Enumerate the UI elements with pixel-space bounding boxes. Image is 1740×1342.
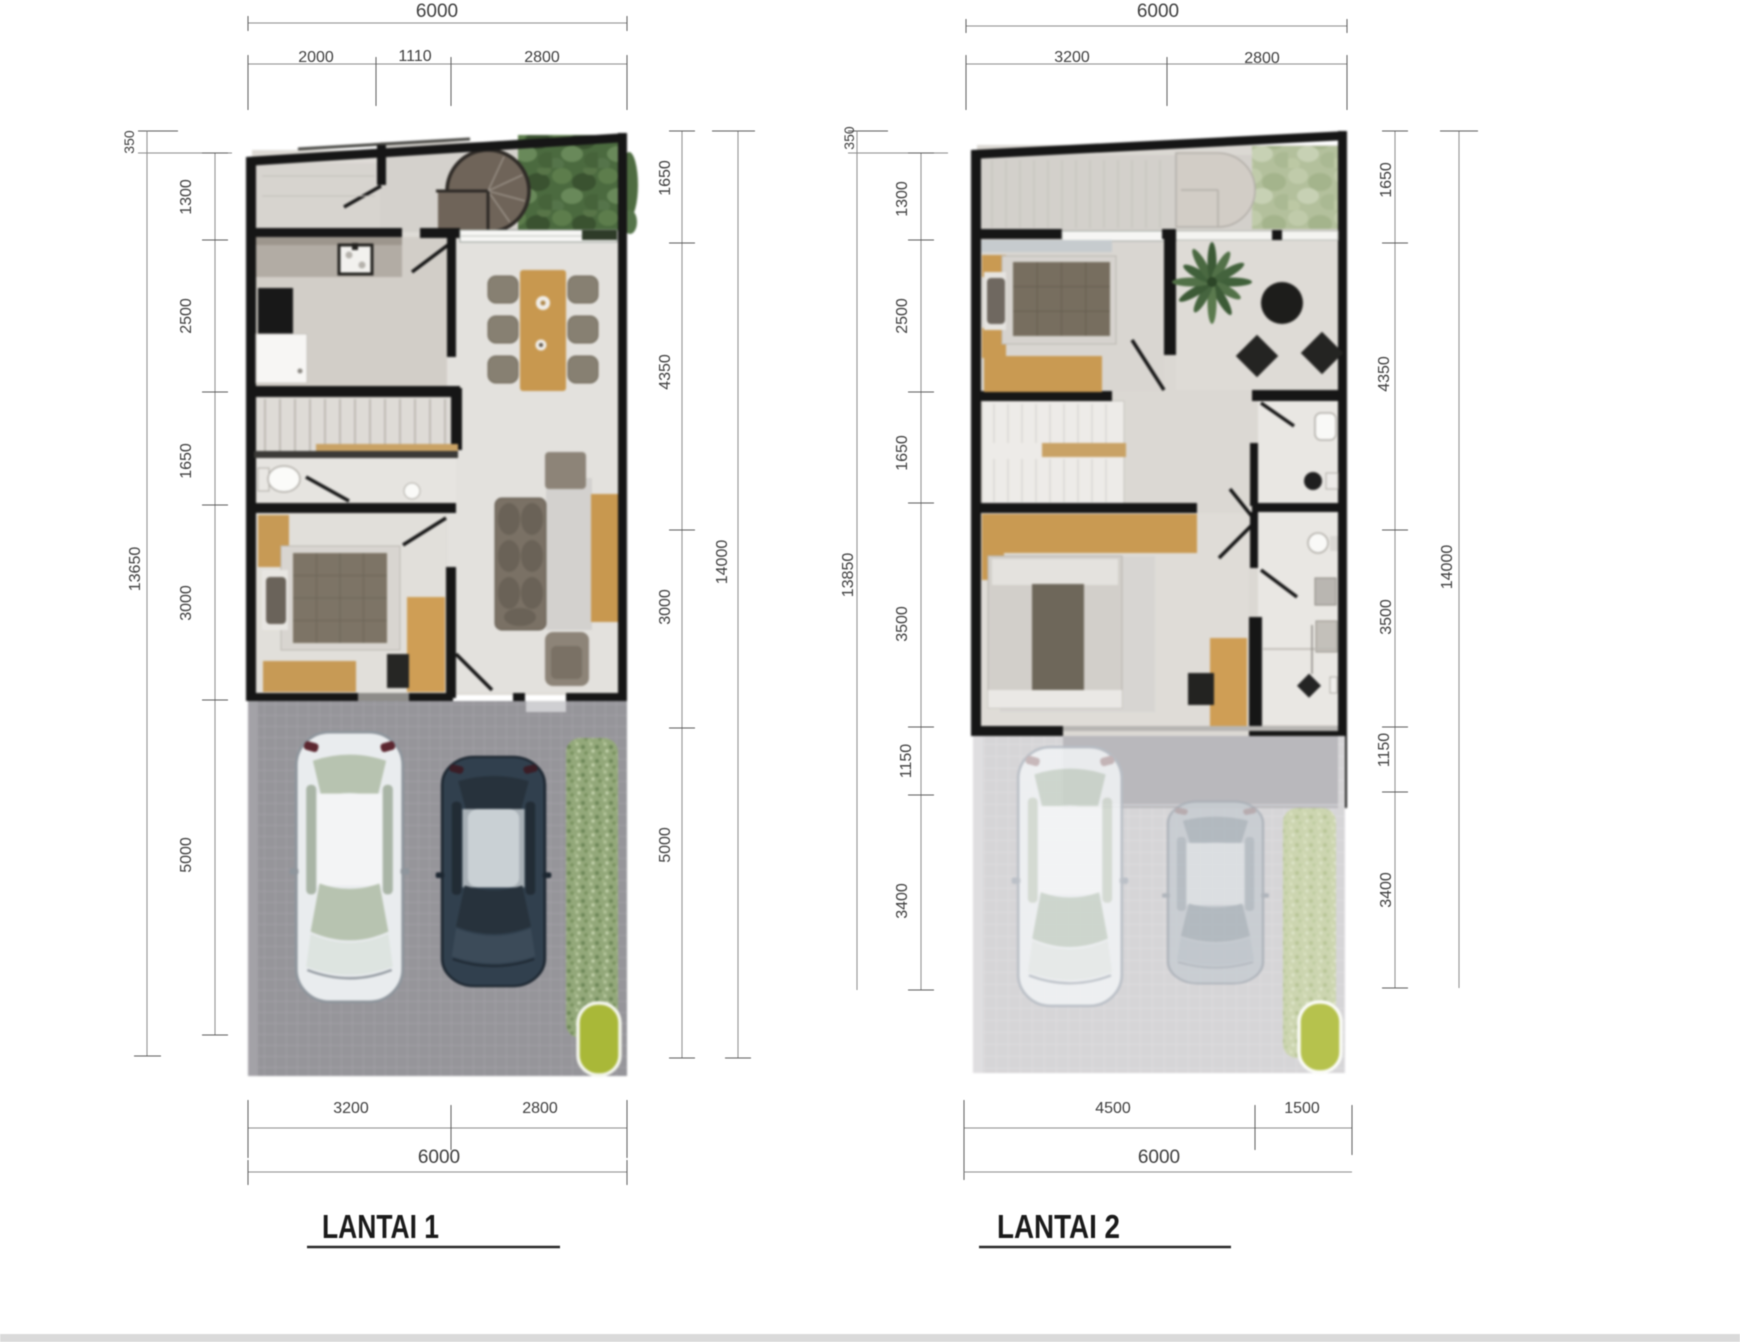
svg-text:1300: 1300 <box>894 181 911 217</box>
svg-text:13650: 13650 <box>127 547 144 592</box>
svg-text:3200: 3200 <box>1054 49 1090 66</box>
svg-text:1650: 1650 <box>178 443 195 479</box>
svg-text:5000: 5000 <box>657 827 674 863</box>
svg-text:6000: 6000 <box>1138 1147 1180 1168</box>
svg-text:1150: 1150 <box>898 744 915 779</box>
svg-text:3000: 3000 <box>657 589 674 625</box>
svg-text:1500: 1500 <box>1284 1100 1320 1117</box>
svg-text:4350: 4350 <box>1376 356 1393 392</box>
svg-text:3500: 3500 <box>894 606 911 642</box>
svg-text:3400: 3400 <box>1378 872 1395 908</box>
svg-text:3500: 3500 <box>1378 599 1395 635</box>
svg-text:LANTAI 1: LANTAI 1 <box>322 1208 439 1245</box>
svg-text:14000: 14000 <box>714 540 731 585</box>
svg-text:1650: 1650 <box>894 435 911 471</box>
svg-text:1110: 1110 <box>398 48 431 65</box>
svg-text:6000: 6000 <box>418 1147 460 1168</box>
svg-text:350: 350 <box>841 126 857 150</box>
svg-text:14000: 14000 <box>1439 545 1456 590</box>
svg-text:4350: 4350 <box>657 354 674 390</box>
svg-text:2500: 2500 <box>894 298 911 334</box>
svg-text:13850: 13850 <box>840 553 857 598</box>
svg-text:2800: 2800 <box>522 1100 558 1117</box>
svg-text:5000: 5000 <box>178 837 195 873</box>
svg-text:LANTAI 2: LANTAI 2 <box>997 1208 1120 1245</box>
svg-text:350: 350 <box>121 130 137 154</box>
svg-text:6000: 6000 <box>416 1 458 22</box>
svg-text:1650: 1650 <box>1378 162 1395 198</box>
svg-text:2800: 2800 <box>524 49 560 66</box>
svg-text:1150: 1150 <box>1376 733 1393 768</box>
svg-text:3200: 3200 <box>333 1100 369 1117</box>
svg-text:1300: 1300 <box>178 179 195 215</box>
svg-text:4500: 4500 <box>1095 1100 1131 1117</box>
svg-text:2800: 2800 <box>1244 50 1280 67</box>
svg-text:6000: 6000 <box>1137 1 1179 22</box>
svg-text:2000: 2000 <box>298 49 334 66</box>
svg-text:3000: 3000 <box>178 585 195 621</box>
svg-text:2500: 2500 <box>178 298 195 334</box>
svg-text:3400: 3400 <box>894 883 911 919</box>
svg-text:1650: 1650 <box>657 160 674 196</box>
